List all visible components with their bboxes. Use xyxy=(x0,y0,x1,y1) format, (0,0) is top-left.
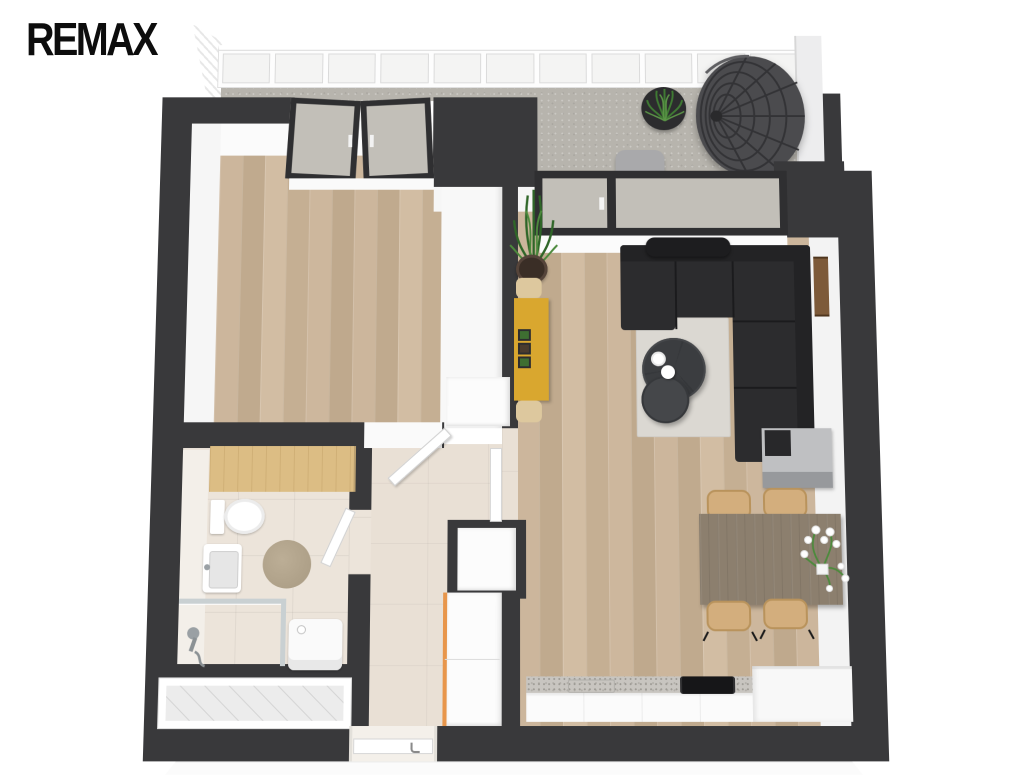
hallway-doorway-floor xyxy=(502,428,518,532)
window-divider xyxy=(607,178,616,228)
kitchen-right-cabinet xyxy=(752,666,853,722)
railing-panel xyxy=(592,54,640,84)
planter-box xyxy=(518,356,531,368)
cooktop xyxy=(680,676,735,694)
railing-panel xyxy=(539,54,587,84)
hanging-egg-chair-icon xyxy=(692,54,809,178)
hall-storage-niche xyxy=(457,528,516,591)
shower-glass-screen xyxy=(179,599,286,604)
entry-door-leaf xyxy=(353,738,433,754)
floor-plan xyxy=(140,30,891,776)
coffee-table-small xyxy=(641,376,689,423)
railing-panel xyxy=(433,54,481,84)
center-top-wall-block xyxy=(433,97,538,187)
dining-chair xyxy=(763,599,808,630)
hall-open-door-leaf xyxy=(490,448,502,522)
railing-panel xyxy=(328,54,376,84)
washing-machine xyxy=(288,619,343,670)
dining-chair xyxy=(706,601,751,632)
remax-logo: REMAX xyxy=(26,16,156,62)
window-handle xyxy=(599,197,604,209)
sofa-seam xyxy=(733,320,795,322)
door-handle xyxy=(370,135,374,147)
railing-panel xyxy=(486,54,534,84)
entry-door-handle xyxy=(410,743,419,753)
sofa-headrest-pillow xyxy=(646,237,731,256)
canvas: REMAX xyxy=(0,0,1024,768)
railing-panel xyxy=(275,54,323,84)
bedroom-top-wall xyxy=(187,97,295,123)
bench-stool-top xyxy=(516,278,542,298)
hall-wardrobe-seam xyxy=(445,659,500,660)
sideboard-speaker xyxy=(765,430,792,456)
hall-living-wall-lower xyxy=(502,599,520,728)
french-door-sill xyxy=(289,178,434,189)
toilet xyxy=(210,500,225,534)
outer-wall-bottom xyxy=(143,726,889,761)
sofa-seam xyxy=(734,387,797,389)
kitchen-counter-front xyxy=(526,693,760,722)
coffee-cup xyxy=(653,354,664,365)
door-handle xyxy=(348,135,352,147)
planter-box xyxy=(518,329,531,341)
railing-panel xyxy=(644,54,692,84)
bathtub xyxy=(158,678,351,728)
bathroom-wood-counter xyxy=(209,446,356,492)
foundation-strip xyxy=(165,761,863,775)
washbasin-bowl xyxy=(209,551,239,588)
balcony-window xyxy=(535,171,789,236)
bedroom-floor xyxy=(214,154,443,425)
kitchen-sink xyxy=(568,679,615,692)
teapot xyxy=(661,365,675,379)
wall-shelf xyxy=(813,257,829,317)
bench-stool-bottom xyxy=(516,401,542,423)
balcony-plant-icon xyxy=(643,83,686,126)
railing-panel xyxy=(381,54,429,84)
hall-low-cabinet xyxy=(446,377,510,426)
planter-box xyxy=(518,343,531,355)
railing-panel xyxy=(222,54,271,84)
flower-bouquet-icon xyxy=(800,522,852,593)
hand-shower-icon xyxy=(182,623,214,670)
french-doors xyxy=(287,97,436,182)
